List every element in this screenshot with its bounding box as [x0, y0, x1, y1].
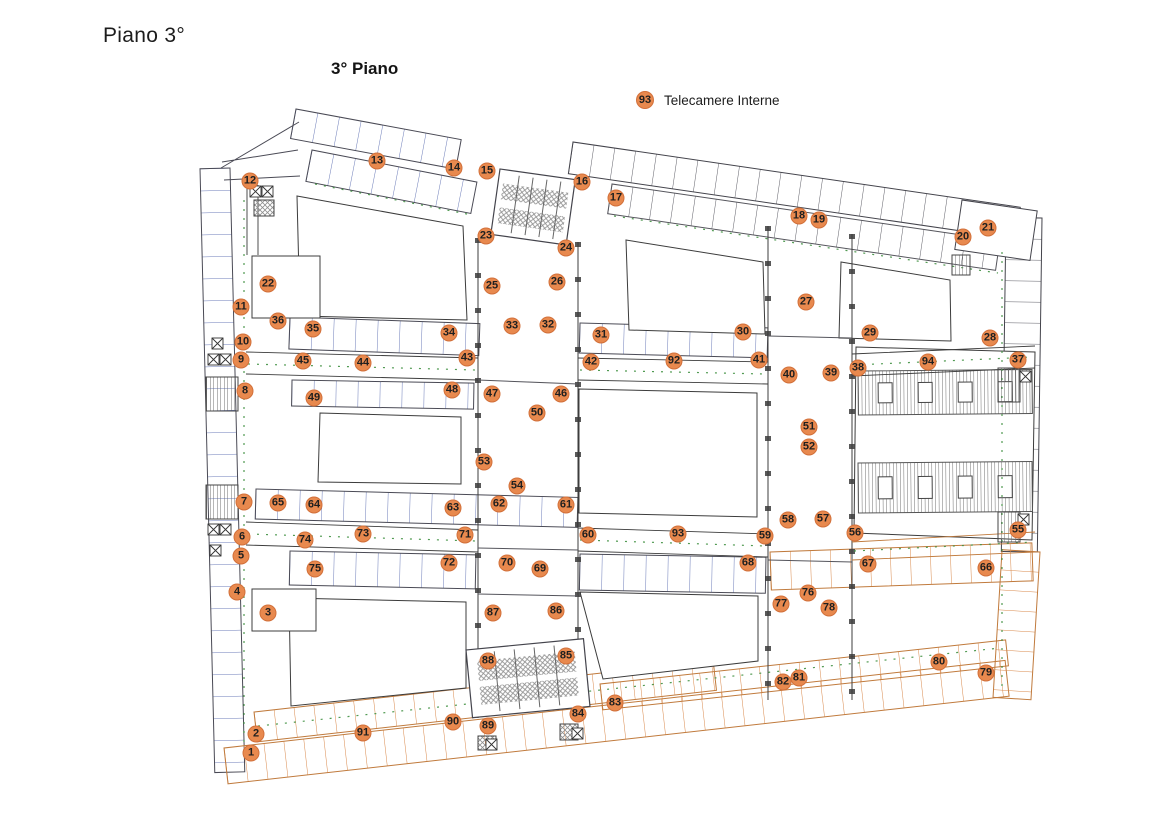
camera-marker-94: 94 [920, 354, 937, 371]
camera-marker-63: 63 [445, 500, 462, 517]
camera-marker-38: 38 [850, 360, 867, 377]
camera-marker-22: 22 [260, 276, 277, 293]
camera-marker-8: 8 [237, 383, 254, 400]
camera-marker-62: 62 [491, 496, 508, 513]
camera-marker-3: 3 [260, 605, 277, 622]
camera-marker-25: 25 [484, 278, 501, 295]
camera-marker-44: 44 [355, 355, 372, 372]
legend-camera-marker: 93 [636, 91, 654, 109]
camera-marker-54: 54 [509, 478, 526, 495]
camera-marker-34: 34 [441, 325, 458, 342]
camera-marker-24: 24 [558, 240, 575, 257]
camera-marker-67: 67 [860, 556, 877, 573]
camera-marker-60: 60 [580, 527, 597, 544]
camera-marker-87: 87 [485, 605, 502, 622]
camera-marker-7: 7 [236, 494, 253, 511]
camera-marker-9: 9 [233, 352, 250, 369]
camera-marker-41: 41 [751, 352, 768, 369]
camera-marker-57: 57 [815, 511, 832, 528]
camera-marker-47: 47 [484, 386, 501, 403]
camera-marker-81: 81 [791, 670, 808, 687]
camera-marker-5: 5 [233, 548, 250, 565]
camera-marker-80: 80 [931, 654, 948, 671]
camera-marker-23: 23 [478, 228, 495, 245]
camera-marker-27: 27 [798, 294, 815, 311]
camera-marker-76: 76 [800, 585, 817, 602]
wing-west [200, 168, 245, 773]
camera-marker-89: 89 [480, 718, 497, 735]
page-title: Piano 3° [103, 24, 185, 48]
camera-marker-48: 48 [444, 382, 461, 399]
camera-marker-49: 49 [306, 390, 323, 407]
camera-marker-4: 4 [229, 584, 246, 601]
camera-marker-10: 10 [235, 334, 252, 351]
legend-label: Telecamere Interne [664, 93, 780, 108]
camera-marker-75: 75 [307, 561, 324, 578]
camera-marker-29: 29 [862, 325, 879, 342]
camera-marker-73: 73 [355, 526, 372, 543]
camera-marker-77: 77 [773, 596, 790, 613]
camera-marker-83: 83 [607, 695, 624, 712]
legend: 93 Telecamere Interne [636, 91, 780, 109]
camera-marker-71: 71 [457, 527, 474, 544]
camera-marker-55: 55 [1010, 522, 1027, 539]
camera-marker-36: 36 [270, 313, 287, 330]
camera-marker-61: 61 [558, 497, 575, 514]
camera-marker-53: 53 [476, 454, 493, 471]
camera-marker-46: 46 [553, 386, 570, 403]
camera-marker-65: 65 [270, 495, 287, 512]
camera-marker-86: 86 [548, 603, 565, 620]
floorplan-drawing [0, 0, 1169, 827]
corner-edge-northwest [221, 122, 300, 180]
camera-marker-40: 40 [781, 367, 798, 384]
camera-marker-70: 70 [499, 555, 516, 572]
camera-marker-69: 69 [532, 561, 549, 578]
camera-marker-16: 16 [574, 174, 591, 191]
camera-marker-26: 26 [549, 274, 566, 291]
camera-marker-91: 91 [355, 725, 372, 742]
camera-marker-52: 52 [801, 439, 818, 456]
camera-marker-68: 68 [740, 555, 757, 572]
camera-marker-66: 66 [978, 560, 995, 577]
camera-marker-72: 72 [441, 555, 458, 572]
camera-marker-37: 37 [1010, 352, 1027, 369]
camera-marker-32: 32 [540, 317, 557, 334]
camera-marker-59: 59 [757, 528, 774, 545]
courtyards [252, 196, 1035, 706]
camera-marker-39: 39 [823, 365, 840, 382]
camera-marker-45: 45 [295, 353, 312, 370]
camera-marker-79: 79 [978, 665, 995, 682]
camera-marker-28: 28 [982, 330, 999, 347]
camera-marker-20: 20 [955, 229, 972, 246]
camera-marker-58: 58 [780, 512, 797, 529]
stair-hall-top [491, 169, 575, 245]
camera-marker-33: 33 [504, 318, 521, 335]
camera-marker-92: 92 [666, 353, 683, 370]
camera-marker-93: 93 [670, 526, 687, 543]
rooms-band-64 [255, 489, 578, 527]
floorplan-page: Piano 3° 3° Piano 93 Telecamere Interne … [0, 0, 1169, 827]
camera-marker-17: 17 [608, 190, 625, 207]
camera-marker-31: 31 [593, 327, 610, 344]
camera-marker-74: 74 [297, 532, 314, 549]
camera-marker-84: 84 [570, 706, 587, 723]
camera-marker-51: 51 [801, 419, 818, 436]
camera-marker-14: 14 [446, 160, 463, 177]
camera-marker-2: 2 [248, 726, 265, 743]
camera-marker-56: 56 [847, 525, 864, 542]
camera-marker-18: 18 [791, 208, 808, 225]
camera-marker-85: 85 [558, 648, 575, 665]
camera-marker-13: 13 [369, 153, 386, 170]
camera-marker-90: 90 [445, 714, 462, 731]
camera-marker-35: 35 [305, 321, 322, 338]
camera-marker-6: 6 [234, 529, 251, 546]
camera-marker-30: 30 [735, 324, 752, 341]
camera-marker-78: 78 [821, 600, 838, 617]
map-title: 3° Piano [331, 59, 398, 79]
rooms-band-68 [579, 554, 766, 593]
camera-marker-12: 12 [242, 173, 259, 190]
camera-marker-64: 64 [306, 497, 323, 514]
camera-marker-11: 11 [233, 299, 250, 316]
camera-marker-21: 21 [980, 220, 997, 237]
camera-marker-43: 43 [459, 350, 476, 367]
camera-marker-88: 88 [480, 653, 497, 670]
camera-marker-1: 1 [243, 745, 260, 762]
camera-marker-42: 42 [583, 354, 600, 371]
camera-marker-50: 50 [529, 405, 546, 422]
camera-marker-82: 82 [775, 674, 792, 691]
camera-marker-19: 19 [811, 212, 828, 229]
loggia-strip-lower [858, 461, 1032, 513]
camera-marker-15: 15 [479, 163, 496, 180]
